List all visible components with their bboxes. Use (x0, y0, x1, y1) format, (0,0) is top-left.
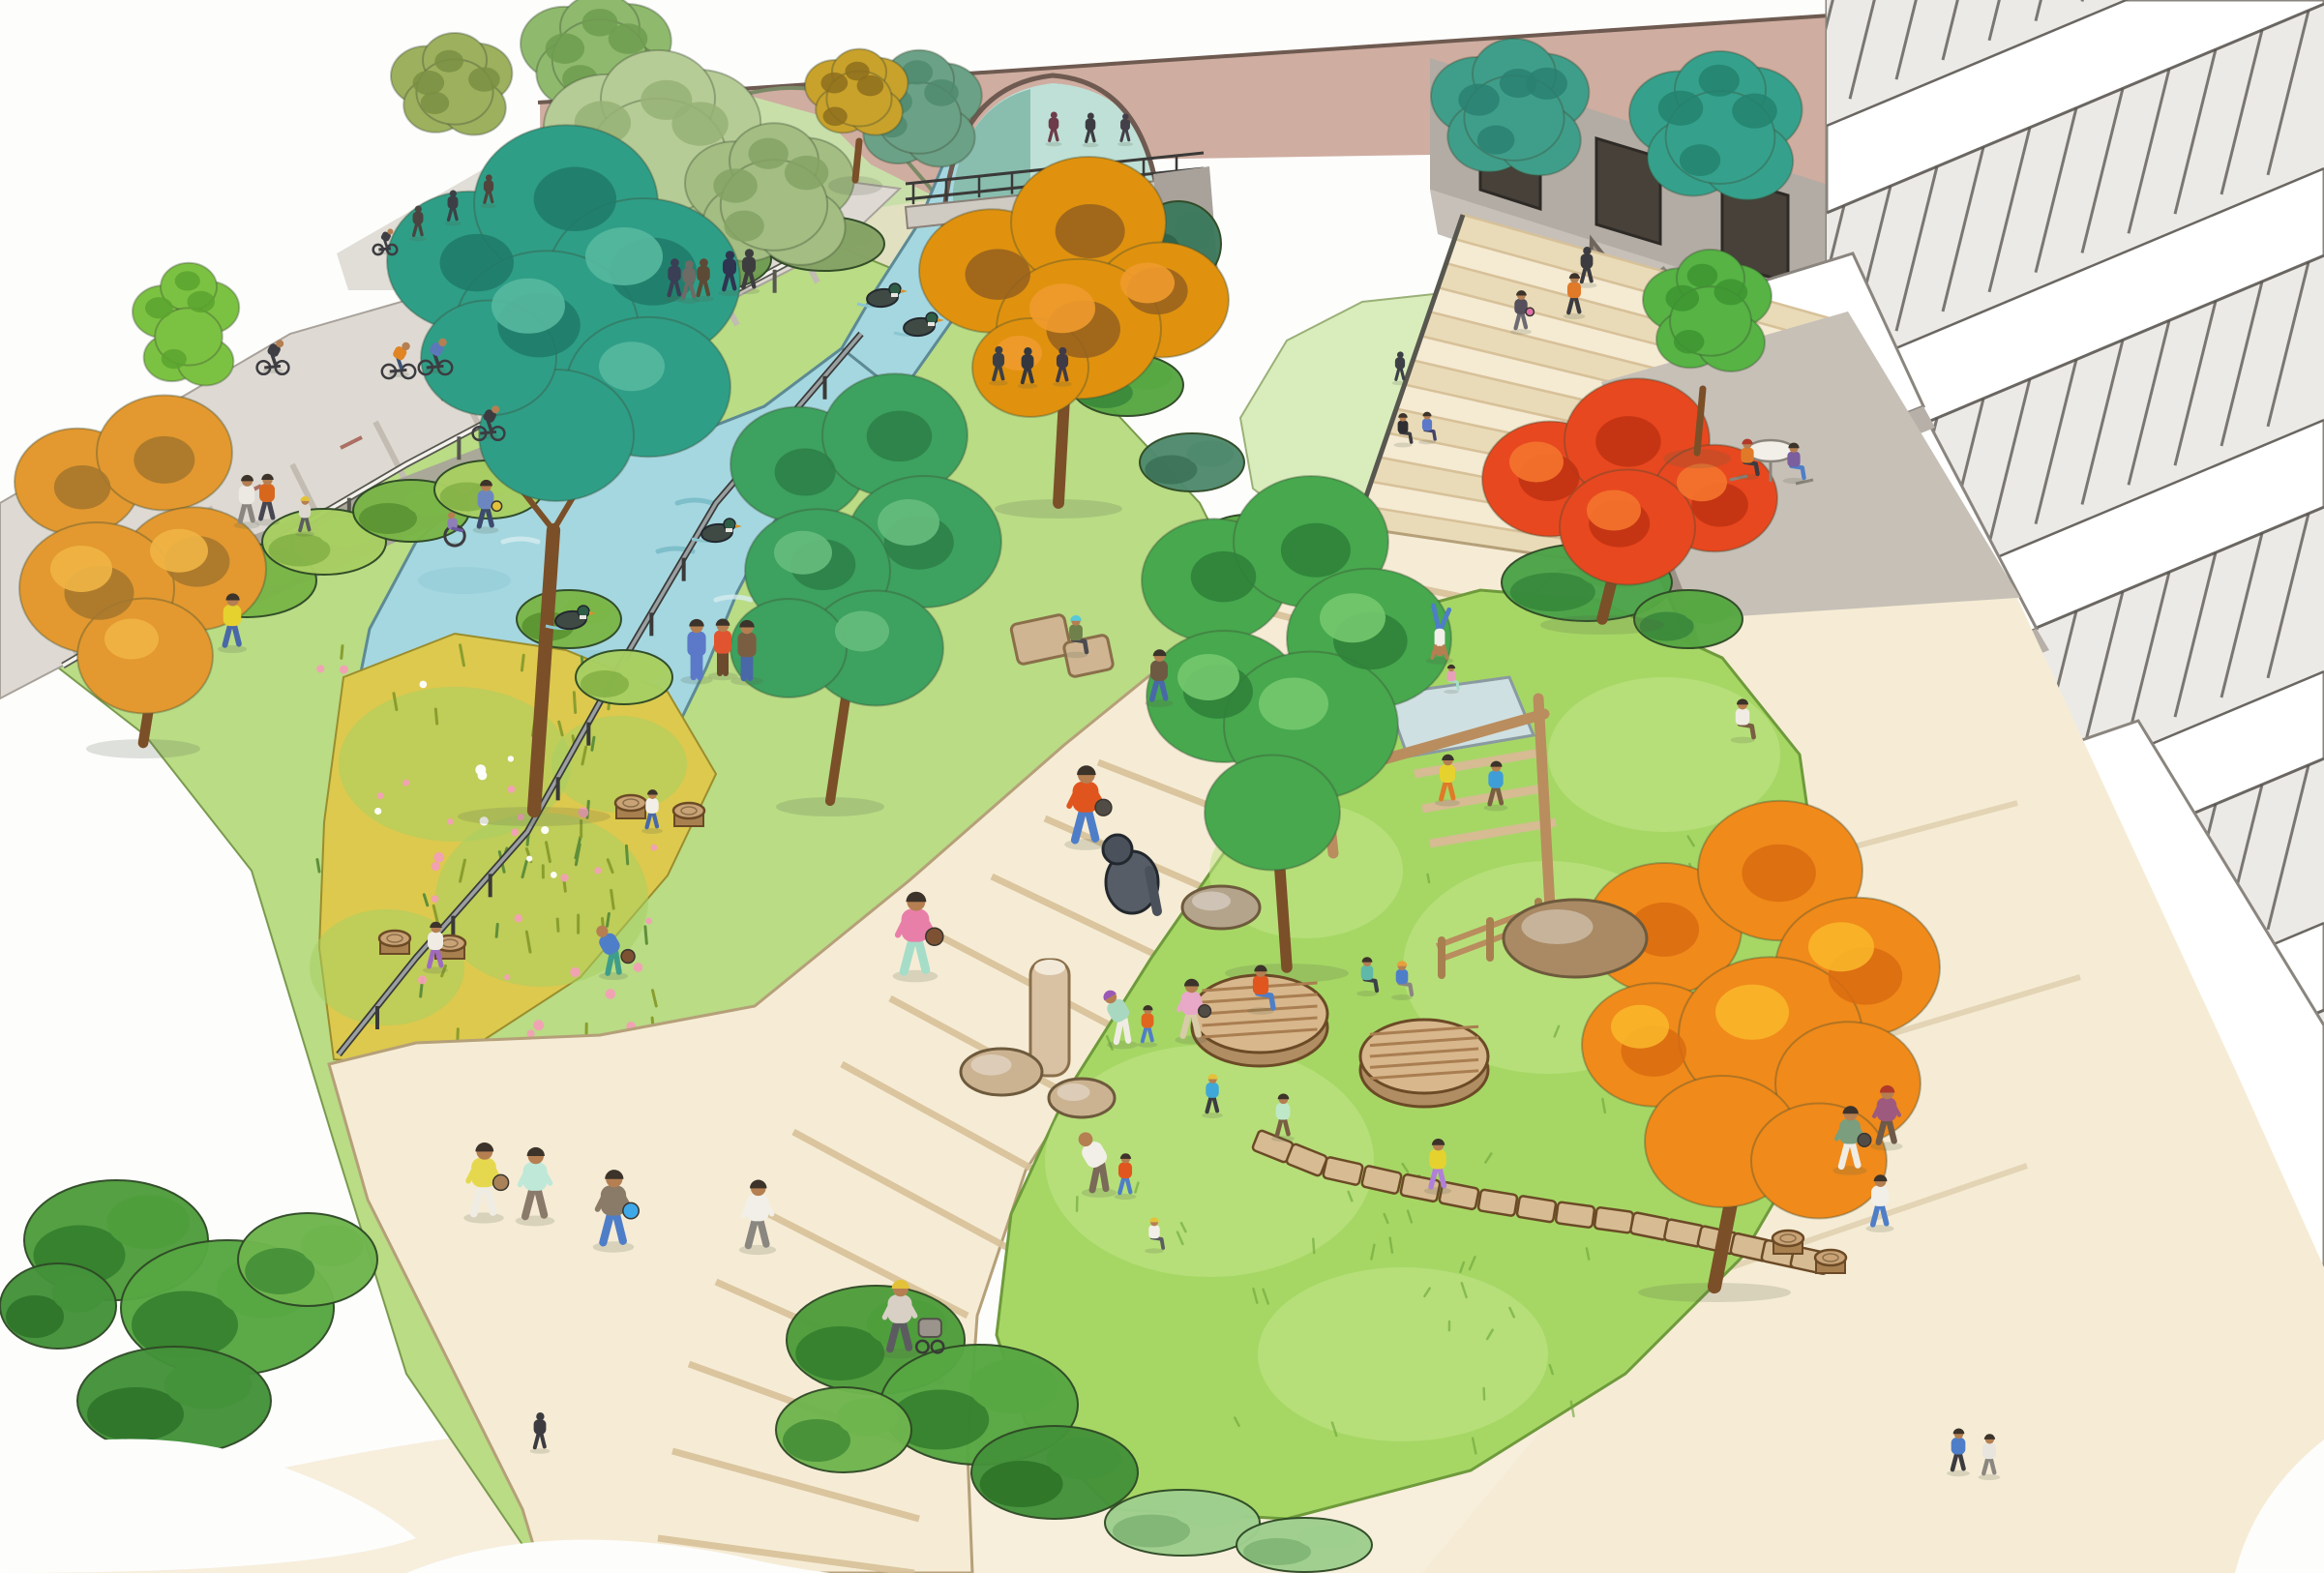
person-torso (723, 258, 736, 275)
tree-light-patch (104, 619, 159, 660)
person-shadow (1731, 737, 1755, 744)
person-head (685, 260, 694, 269)
person-shadow (1394, 442, 1413, 447)
person-torso (1057, 354, 1068, 368)
person-shadow (739, 1245, 776, 1255)
person-shadow (423, 967, 448, 974)
person-torso (1395, 357, 1405, 369)
flower-dot (645, 918, 652, 925)
stepping-stump (1773, 1231, 1803, 1246)
bush (576, 650, 672, 704)
bush (971, 1426, 1138, 1519)
person-shadow (693, 296, 714, 302)
person-torso (1871, 1186, 1889, 1206)
grass-tuft (608, 913, 610, 926)
water-shade (418, 567, 511, 594)
person-shadow (295, 531, 314, 536)
stepping-stump (379, 931, 410, 946)
person-shadow (1175, 1036, 1207, 1045)
tree-light-patch (1677, 463, 1727, 501)
lawn-tuft (1428, 875, 1430, 882)
person-head (1122, 113, 1129, 120)
tree-dark-patch (820, 73, 848, 94)
person-torso (1142, 1013, 1154, 1027)
person-shadow (1247, 1007, 1274, 1015)
tree-dark-patch (421, 92, 450, 114)
bush-lump (1046, 1438, 1120, 1479)
person-head (995, 346, 1002, 354)
lawn-light-patch (1258, 1267, 1548, 1441)
person-torso (448, 196, 459, 209)
person-torso (1049, 118, 1059, 131)
tree-light-patch (1611, 1005, 1669, 1049)
grass-tuft (592, 737, 594, 750)
stroller-body (919, 1319, 941, 1337)
cyclist-head (276, 340, 283, 347)
person-torso (1150, 661, 1168, 681)
flower-dot (447, 818, 454, 825)
person-torso (1429, 1149, 1445, 1170)
tree-light-patch (50, 546, 112, 592)
tree-dark-patch (134, 436, 194, 484)
person-shadow (472, 526, 498, 533)
tree-dark-patch (1674, 330, 1705, 354)
tree-dark-patch (582, 9, 618, 37)
person-torso (1447, 670, 1456, 681)
person-torso (1118, 1162, 1132, 1178)
bush-lump (1683, 598, 1731, 624)
tree-dark-patch (1658, 91, 1704, 126)
person-shadow (1082, 143, 1098, 148)
tree-dark-patch (1742, 845, 1816, 903)
bush (0, 1263, 116, 1349)
bush-lump (969, 1360, 1058, 1414)
person-shadow (1392, 381, 1409, 385)
duck-neck (726, 528, 732, 532)
person-bag (493, 1174, 509, 1190)
tree-dark-patch (54, 465, 111, 510)
person-torso (742, 256, 756, 273)
tree-dark-patch (1732, 94, 1777, 129)
tree-light-patch (774, 531, 832, 575)
cyclist-head (438, 339, 446, 346)
person-shadow (1018, 383, 1038, 389)
tree-dark-patch (823, 107, 848, 127)
grass-tuft (557, 919, 558, 931)
tree-dark-patch (162, 349, 187, 369)
person-torso (993, 353, 1004, 367)
person-torso (1148, 1225, 1159, 1238)
tree-light-patch (1259, 678, 1328, 730)
tree-light-patch (1120, 263, 1175, 304)
person-shadow (516, 1216, 555, 1227)
person-torso (1982, 1442, 1996, 1459)
person-shadow (1444, 690, 1459, 694)
bush (776, 1387, 911, 1472)
person-torso (299, 504, 311, 518)
bush-lump (52, 1274, 104, 1313)
person-shadow (738, 288, 760, 294)
flower-dot (515, 914, 522, 922)
flower-dot (511, 828, 519, 836)
stepping-stump (673, 803, 704, 818)
bush-lump (107, 1196, 191, 1250)
person-torso (1398, 421, 1409, 433)
person-torso (259, 484, 275, 502)
person-shadow (989, 380, 1008, 385)
tree-light-patch (835, 611, 889, 652)
flower-dot (634, 963, 643, 972)
person-bag (623, 1202, 639, 1218)
bike-frame (390, 370, 407, 371)
grass-tuft (317, 859, 319, 872)
person-torso (714, 631, 731, 654)
duck-neck (580, 615, 586, 619)
bike-frame (264, 366, 281, 368)
bush-lump (837, 1398, 898, 1437)
tree-canopy (1205, 756, 1340, 871)
person-torso (413, 212, 424, 224)
wall-block (1477, 1189, 1517, 1216)
tree-dark-patch (1281, 523, 1351, 578)
bike-frame (378, 249, 391, 250)
person-shadow (1947, 1470, 1970, 1476)
cyclist-head (492, 405, 499, 413)
cyclist-head (387, 228, 393, 234)
person-torso (1361, 965, 1374, 980)
person-torso (484, 180, 493, 192)
person-torso (534, 1419, 547, 1434)
grass-tuft (521, 655, 523, 670)
person-head (448, 512, 455, 519)
tree-dark-patch (534, 167, 617, 232)
gorilla-head (1103, 835, 1132, 864)
person-head (1397, 351, 1404, 358)
flower-dot (508, 756, 514, 761)
tree-dark-patch (434, 50, 463, 73)
tree-trunk (855, 141, 859, 180)
person-bag (1199, 1005, 1211, 1018)
person-torso (1741, 448, 1753, 463)
flower-dot (606, 989, 616, 999)
person-leg (1102, 1164, 1106, 1188)
person-shadow (1356, 991, 1378, 996)
lawn-tuft (1313, 1239, 1314, 1253)
tree-dark-patch (867, 411, 933, 462)
person-shadow (1064, 839, 1107, 850)
person-head (1435, 646, 1445, 657)
person-head (1024, 347, 1031, 355)
person-head (745, 249, 754, 257)
person-shadow (880, 1349, 920, 1359)
person-head (726, 251, 734, 259)
tree-dark-patch (1595, 416, 1661, 467)
tree-canopy (1751, 1104, 1887, 1219)
tree-dark-patch (546, 33, 585, 64)
person-torso (1022, 354, 1034, 369)
duck-neck (891, 293, 898, 297)
flower-dot (418, 975, 427, 984)
person-head (1088, 112, 1094, 119)
person-torso (1086, 119, 1096, 132)
person-shadow (444, 222, 462, 226)
person-torso (1440, 764, 1455, 783)
person-shadow (1115, 1194, 1137, 1200)
tree-dark-patch (1500, 69, 1537, 98)
person-torso (687, 632, 705, 657)
flower-dot (340, 666, 348, 674)
bush (1236, 1518, 1372, 1572)
person-bag (621, 950, 635, 964)
tree-light-patch (1320, 593, 1385, 642)
boulder-highlight (971, 1054, 1012, 1076)
tree-light-patch (878, 499, 939, 546)
bush-lump (1187, 441, 1235, 467)
person-shadow (593, 1241, 635, 1252)
person-shadow (1870, 1143, 1902, 1151)
person-shadow (1053, 381, 1072, 386)
person-shadow (1435, 800, 1460, 807)
person-torso (239, 486, 255, 505)
person-shadow (1510, 329, 1532, 335)
tree-trunk (1058, 399, 1064, 503)
person-torso (682, 268, 695, 283)
grass-tuft (574, 693, 575, 713)
person-shadow (1145, 1248, 1164, 1253)
person-shadow (1484, 805, 1508, 812)
person-bag (1526, 308, 1534, 315)
boulder-highlight (1522, 909, 1594, 944)
tree-light-patch (1587, 490, 1641, 531)
standing-stone-top (1034, 960, 1065, 975)
tree-dark-patch (1665, 285, 1699, 312)
wall-block (1516, 1196, 1556, 1223)
person-head (1583, 247, 1591, 254)
tree-light-patch (1509, 442, 1564, 483)
person-head (536, 1412, 544, 1420)
person-shadow (530, 1448, 551, 1454)
person-shadow (1045, 142, 1061, 147)
tree-dark-patch (641, 80, 692, 120)
tree-dark-patch (1056, 204, 1125, 258)
bush (238, 1213, 377, 1306)
tree-light-patch (1808, 922, 1874, 971)
person-torso (1396, 969, 1409, 984)
tree-dark-patch (785, 156, 829, 190)
tree-dark-patch (1477, 126, 1515, 155)
person-shadow (1832, 1166, 1866, 1175)
person-shadow (218, 645, 247, 653)
person-shadow (1865, 1225, 1893, 1232)
person-bag (492, 501, 501, 511)
grass-tuft (645, 927, 646, 943)
flower-dot (526, 856, 532, 862)
person-shadow (1107, 1041, 1138, 1050)
tree-dark-patch (724, 211, 763, 242)
person-legs-seated (453, 528, 462, 530)
tree-dark-patch (468, 67, 500, 91)
flower-dot (504, 974, 510, 980)
tree-dark-patch (413, 71, 445, 95)
person-head (486, 174, 492, 181)
flower-dot (374, 808, 381, 815)
tree-light-patch (599, 341, 665, 391)
person-shadow (599, 972, 628, 980)
person-shadow (1564, 313, 1586, 319)
tree-dark-patch (187, 291, 215, 312)
bush-lump (1297, 1525, 1358, 1549)
wall-block (1556, 1202, 1595, 1228)
stepping-stump (1815, 1250, 1846, 1265)
person-shadow (1426, 657, 1453, 665)
bush (1140, 433, 1244, 491)
person-shadow (1145, 699, 1173, 707)
flower-dot (560, 874, 568, 881)
tree-light-patch (492, 279, 565, 334)
bike-frame (480, 431, 496, 433)
flower-dot (651, 845, 658, 851)
person-torso (1567, 282, 1581, 298)
flower-dot (594, 867, 601, 874)
person-shadow (481, 204, 497, 208)
person-head (1058, 347, 1066, 355)
person-shadow (893, 970, 939, 983)
person-bag (926, 928, 943, 945)
person-torso (223, 605, 242, 626)
person-torso (737, 633, 756, 658)
bush-lump (619, 657, 663, 681)
person-shadow (1064, 652, 1088, 658)
person-shadow (1117, 142, 1133, 146)
person-torso (1120, 119, 1130, 131)
bike-frame (427, 366, 444, 368)
tree-light-patch (1029, 283, 1095, 333)
person-torso (1422, 419, 1432, 430)
person-shadow (1424, 1187, 1451, 1195)
person-shadow (1202, 1113, 1223, 1118)
bush-lump (301, 1225, 364, 1266)
person-torso (1581, 253, 1594, 268)
bush-lump (164, 1360, 252, 1409)
person-shadow (1271, 1136, 1295, 1142)
flower-dot (541, 826, 549, 834)
tree-dark-patch (775, 448, 836, 495)
tree-dark-patch (1714, 279, 1748, 305)
person-torso (668, 266, 680, 282)
flower-dot (419, 681, 427, 689)
flower-dot (433, 852, 444, 863)
tree-dark-patch (924, 79, 959, 106)
flower-dot (508, 786, 516, 793)
flower-dot (377, 792, 384, 799)
person-shadow (1391, 994, 1413, 1000)
handstand-torso (1435, 629, 1445, 647)
person-torso (1253, 976, 1268, 994)
tree-light-patch (585, 227, 663, 285)
flower-dot (475, 764, 486, 775)
tree-dark-patch (748, 138, 788, 169)
tree-dark-patch (1699, 65, 1740, 97)
person-shadow (1783, 478, 1805, 484)
flower-dot (533, 1020, 544, 1030)
person-torso (428, 932, 443, 950)
cyclist-head (402, 342, 409, 350)
person-torso (1206, 1083, 1218, 1098)
tree-light-patch (1715, 985, 1789, 1040)
boulder-highlight (1192, 892, 1231, 911)
person-torso (1787, 452, 1800, 467)
grass-tuft (435, 709, 436, 724)
person-head (1051, 111, 1058, 118)
flower-dot (402, 780, 409, 786)
duck-neck (928, 322, 935, 326)
person-leg (1124, 1019, 1128, 1040)
person-head (450, 191, 457, 197)
flower-dot (570, 967, 580, 977)
person-head (670, 258, 679, 267)
bush-lump (1175, 1499, 1244, 1528)
tree-dark-patch (1680, 144, 1720, 176)
person-head (415, 206, 422, 213)
person-torso (1069, 624, 1083, 640)
person-shadow (254, 519, 280, 526)
person-head (700, 258, 708, 267)
person-shadow (1138, 1042, 1158, 1048)
grass-tuft (496, 924, 497, 936)
tree-dark-patch (1191, 551, 1257, 603)
person-shadow (719, 290, 741, 296)
person-leg (615, 952, 618, 972)
person-shadow (463, 1212, 504, 1223)
person-torso (645, 798, 658, 814)
person-bag (1095, 799, 1112, 816)
tree-light-patch (150, 529, 208, 573)
person-shadow (1418, 440, 1436, 445)
wall-block (1594, 1207, 1634, 1233)
stepping-stump (615, 795, 646, 811)
flower-dot (432, 862, 440, 871)
tree-dark-patch (175, 271, 200, 290)
illustration-canvas (0, 0, 2324, 1573)
person-torso (697, 266, 709, 282)
tree-dark-patch (1687, 264, 1718, 288)
person-bag (1858, 1134, 1871, 1147)
boulder-highlight (1058, 1083, 1090, 1101)
flower-dot (432, 895, 439, 903)
person-shadow (409, 237, 427, 242)
person-torso (1736, 708, 1749, 725)
grass-tuft (342, 646, 343, 659)
tree-dark-patch (713, 168, 758, 202)
tree-light-patch (1177, 654, 1239, 700)
tree-dark-patch (145, 297, 173, 318)
person-torso (1488, 770, 1503, 787)
person-shadow (1082, 1188, 1117, 1198)
grass-tuft (626, 846, 627, 863)
person-shadow (1979, 1474, 2001, 1480)
person-torso (1276, 1103, 1291, 1119)
person-torso (1952, 1438, 1966, 1454)
flower-dot (316, 665, 324, 672)
park-illustration (0, 0, 2324, 1573)
person-shadow (1737, 474, 1759, 480)
tree-dark-patch (845, 62, 869, 81)
tree-dark-patch (440, 234, 515, 292)
tree-dark-patch (965, 249, 1030, 300)
flower-dot (551, 872, 557, 878)
tree-dark-patch (1458, 83, 1500, 115)
person-shadow (641, 828, 663, 834)
